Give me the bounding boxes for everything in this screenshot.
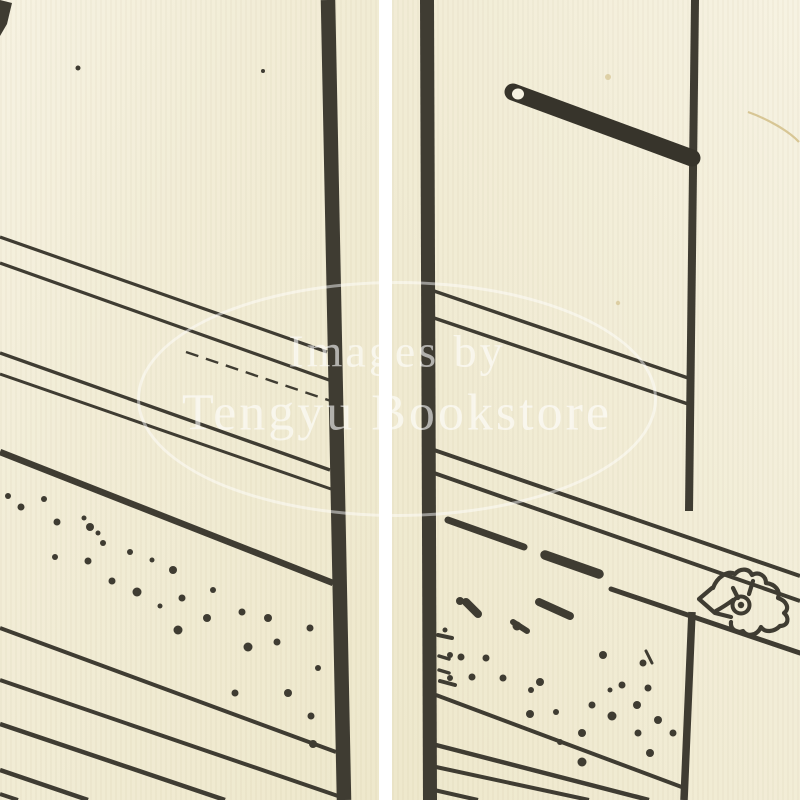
corner-mark — [0, 0, 12, 36]
left-diagonal-lines — [0, 237, 338, 800]
right-stipple-dots — [443, 597, 677, 767]
inner-frame-rule-lower — [684, 612, 692, 800]
paper-scratch — [748, 112, 799, 142]
artwork-scan: Images by Tengyu Bookstore — [0, 0, 800, 800]
left-paper-flecks — [76, 66, 266, 74]
left-stipple-dots — [5, 493, 321, 748]
latch-rod-eye — [512, 89, 524, 100]
right-diagonal-lines — [434, 291, 800, 800]
page-gutter — [379, 0, 392, 800]
right-page-ink — [427, 0, 800, 800]
right-vertical-rule — [427, 0, 430, 800]
latch-rod — [512, 89, 692, 159]
left-page-ink — [0, 0, 344, 800]
engraving-linework — [0, 0, 800, 800]
right-paper-flecks — [605, 74, 620, 305]
inner-frame-rule-upper — [689, 0, 695, 511]
